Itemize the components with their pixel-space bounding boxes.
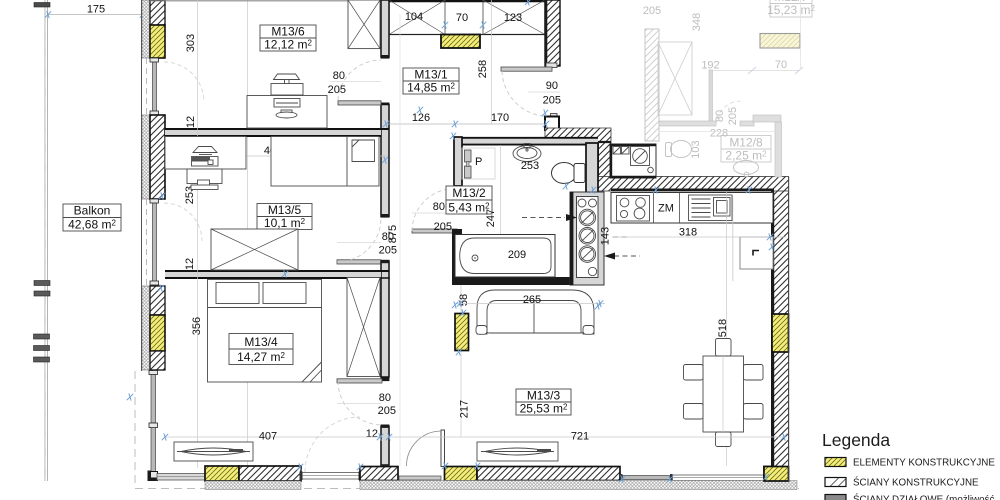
svg-text:12: 12 xyxy=(185,116,197,128)
svg-text:123: 123 xyxy=(504,12,522,24)
svg-text:M13/4: M13/4 xyxy=(244,335,278,349)
svg-text:70: 70 xyxy=(456,12,468,24)
svg-text:103: 103 xyxy=(690,140,702,158)
svg-text:205: 205 xyxy=(328,84,346,96)
svg-text:228: 228 xyxy=(710,128,728,140)
svg-text:170: 170 xyxy=(491,112,509,124)
svg-text:407: 407 xyxy=(259,431,277,443)
svg-text:80: 80 xyxy=(433,201,445,213)
svg-text:205: 205 xyxy=(434,221,452,233)
svg-text:80: 80 xyxy=(379,392,391,404)
svg-text:12: 12 xyxy=(184,258,196,270)
svg-text:721: 721 xyxy=(571,431,589,443)
svg-text:348: 348 xyxy=(691,13,703,31)
svg-text:12,12 m2: 12,12 m2 xyxy=(264,38,312,52)
svg-text:518: 518 xyxy=(717,319,729,337)
svg-text:126: 126 xyxy=(412,112,430,124)
svg-text:209: 209 xyxy=(508,249,526,261)
svg-text:10,1 m2: 10,1 m2 xyxy=(264,216,306,230)
svg-text:875: 875 xyxy=(387,225,399,243)
svg-text:42,68 m2: 42,68 m2 xyxy=(68,218,116,232)
svg-text:192: 192 xyxy=(701,60,719,72)
svg-text:M12/8: M12/8 xyxy=(729,136,763,150)
svg-text:25,53 m2: 25,53 m2 xyxy=(520,402,568,416)
svg-text:205: 205 xyxy=(378,405,396,417)
svg-text:205: 205 xyxy=(643,5,661,17)
svg-text:M13/2: M13/2 xyxy=(452,186,486,200)
svg-text:70: 70 xyxy=(775,59,787,71)
svg-text:Balkon: Balkon xyxy=(74,204,111,218)
svg-text:205: 205 xyxy=(727,107,739,125)
svg-text:ŚCIANY KONSTRUKCYJNE: ŚCIANY KONSTRUKCYJNE xyxy=(853,477,979,489)
svg-text:14,27 m2: 14,27 m2 xyxy=(237,350,285,364)
svg-text:143: 143 xyxy=(600,227,612,245)
svg-text:175: 175 xyxy=(87,4,105,16)
svg-text:12: 12 xyxy=(366,428,378,440)
svg-text:217: 217 xyxy=(459,400,471,418)
svg-text:M13/3: M13/3 xyxy=(527,389,561,403)
svg-text:Legenda: Legenda xyxy=(822,430,890,450)
svg-text:ELEMENTY KONSTRUKCYJNE: ELEMENTY KONSTRUKCYJNE xyxy=(853,458,995,469)
svg-text:104: 104 xyxy=(405,11,423,23)
svg-text:15,23 m2: 15,23 m2 xyxy=(767,3,815,17)
svg-text:80: 80 xyxy=(333,70,345,82)
svg-text:90: 90 xyxy=(546,80,558,92)
svg-text:M13/1: M13/1 xyxy=(414,68,448,82)
svg-text:247: 247 xyxy=(485,209,497,227)
svg-text:205: 205 xyxy=(379,245,397,257)
svg-text:ZM: ZM xyxy=(658,203,674,215)
svg-text:80: 80 xyxy=(714,110,726,122)
svg-text:253: 253 xyxy=(521,160,539,172)
svg-text:265: 265 xyxy=(523,294,541,306)
svg-text:205: 205 xyxy=(543,95,561,107)
svg-text:356: 356 xyxy=(191,317,203,335)
svg-text:ŚCIANY DZIAŁOWE (możliwość: ŚCIANY DZIAŁOWE (możliwość xyxy=(853,494,994,500)
svg-text:M13/5: M13/5 xyxy=(268,203,302,217)
svg-text:318: 318 xyxy=(679,227,697,239)
svg-text:14,85 m2: 14,85 m2 xyxy=(407,81,455,95)
svg-text:258: 258 xyxy=(477,60,489,78)
svg-text:M13/6: M13/6 xyxy=(271,25,305,39)
svg-text:5,43 m2: 5,43 m2 xyxy=(448,201,490,215)
svg-text:303: 303 xyxy=(185,34,197,52)
svg-text:P: P xyxy=(475,156,482,168)
